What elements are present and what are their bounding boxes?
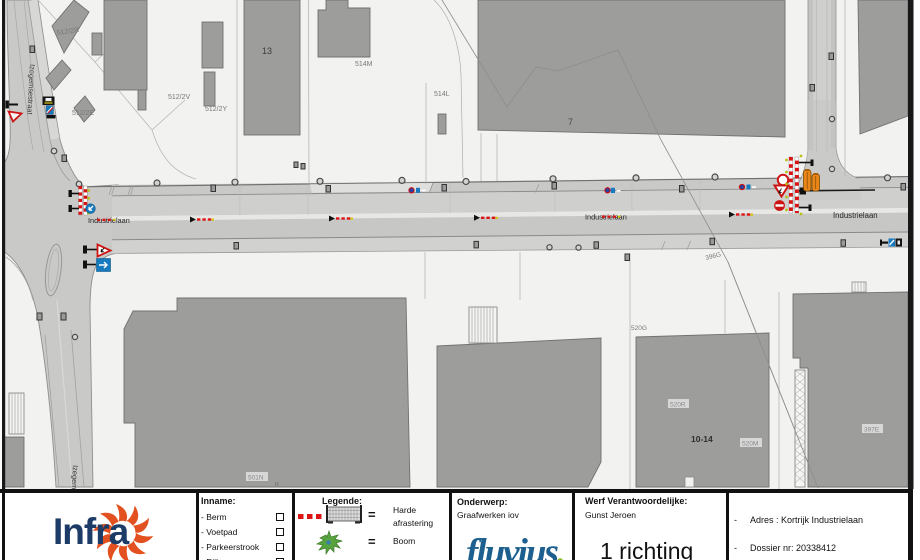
svg-text:R: R <box>275 482 279 488</box>
svg-text:512/2Y: 512/2Y <box>205 106 228 113</box>
svg-text:512/2E: 512/2E <box>72 110 95 117</box>
svg-text:501N: 501N <box>248 475 264 482</box>
svg-text:7: 7 <box>568 117 573 127</box>
svg-text:512/2V: 512/2V <box>168 94 191 101</box>
svg-text:520G: 520G <box>631 325 647 332</box>
svg-text:520R: 520R <box>670 402 686 409</box>
svg-text:397E: 397E <box>864 427 880 434</box>
svg-text:13: 13 <box>262 46 272 56</box>
svg-text:10-14: 10-14 <box>691 434 713 444</box>
svg-text:=: = <box>368 534 376 549</box>
svg-text:514L: 514L <box>434 91 450 98</box>
svg-text:Industrielaan: Industrielaan <box>585 213 627 222</box>
svg-text:Industrielaan: Industrielaan <box>833 211 878 220</box>
svg-text:514M: 514M <box>355 61 373 68</box>
svg-text:=: = <box>368 507 376 522</box>
svg-text:520M: 520M <box>742 441 758 448</box>
